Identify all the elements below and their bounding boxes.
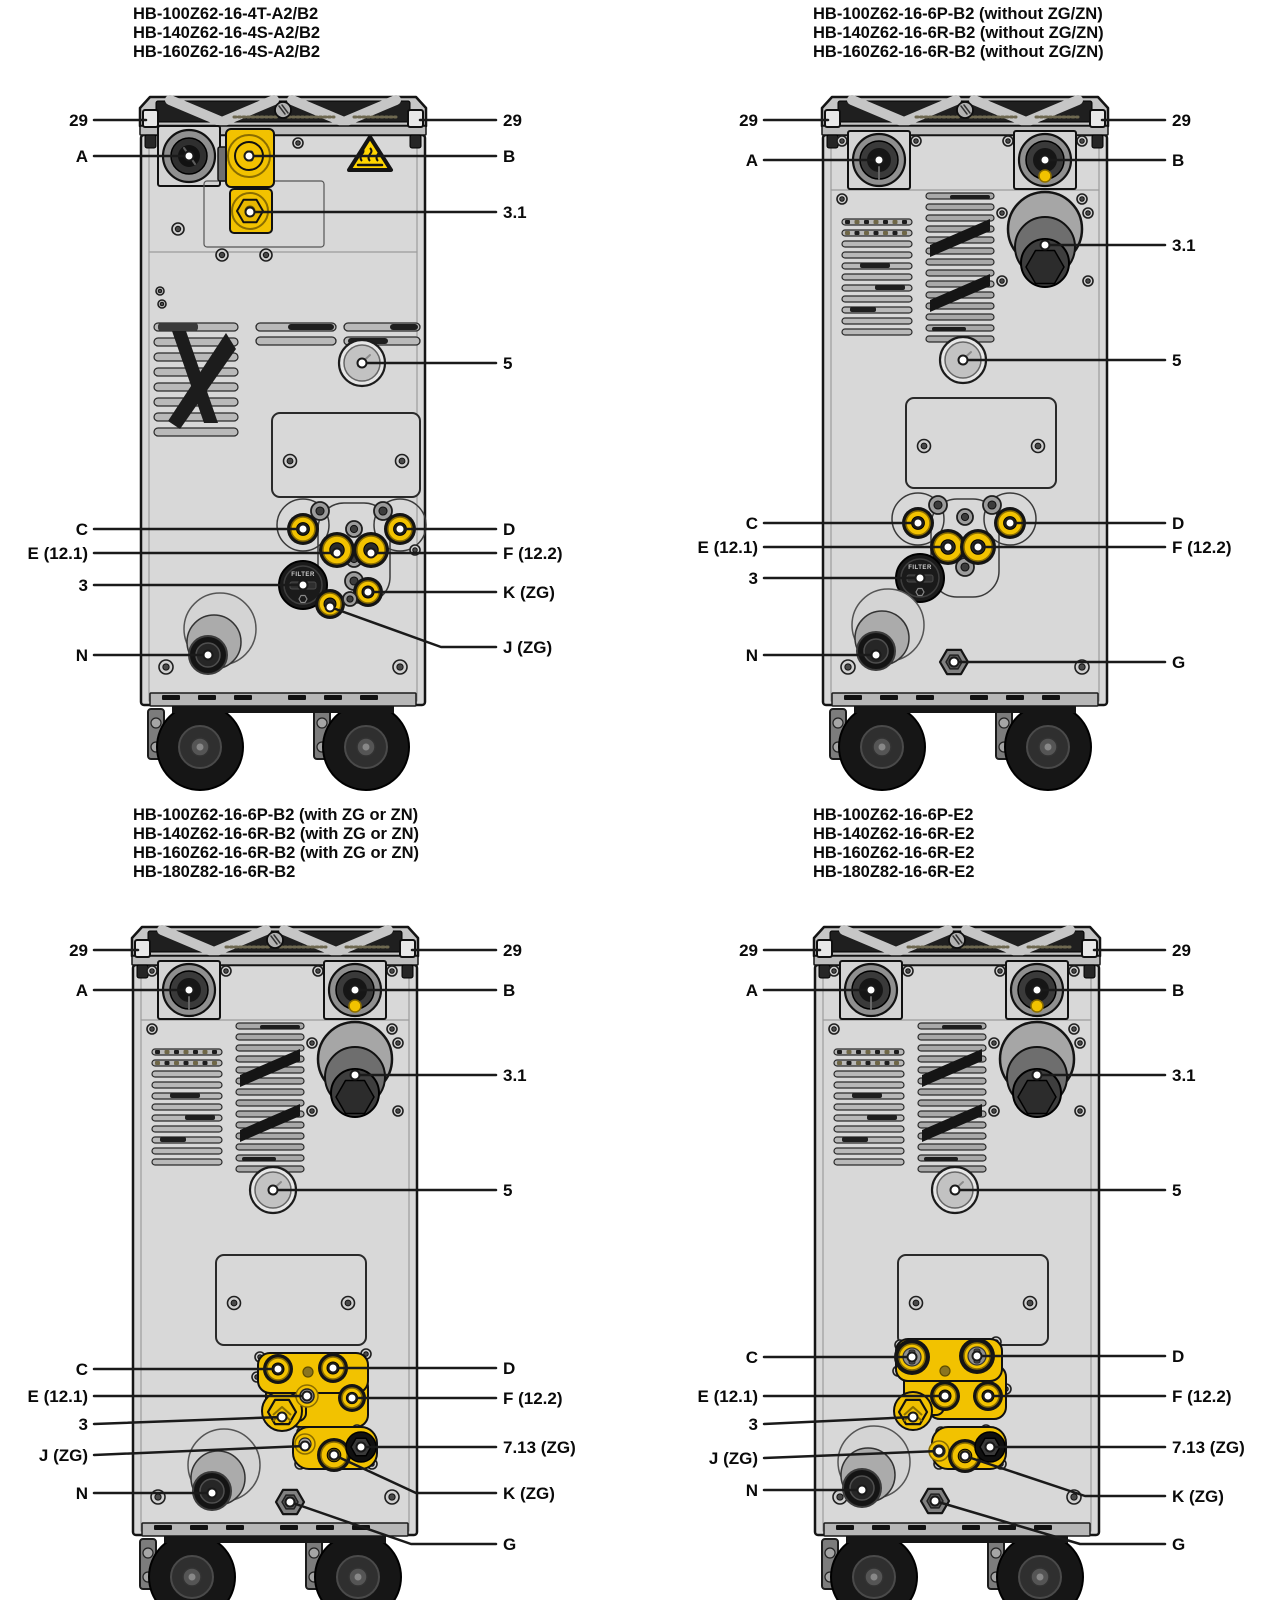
mount-tab-29: [825, 110, 840, 127]
callout-label-k-zg-: K (ZG): [503, 583, 555, 602]
callout-label-29: 29: [69, 941, 88, 960]
callout-label-3: 3: [79, 576, 88, 595]
title-line: HB-140Z62-16-4S-A2/B2: [133, 24, 320, 43]
callout-label-d: D: [503, 1359, 515, 1378]
leader-dot: [950, 658, 959, 667]
leader-dot: [961, 1452, 970, 1461]
leader-dot: [986, 1443, 995, 1452]
leader-dot: [931, 1497, 940, 1506]
filter-knob-label: FILTER: [908, 565, 932, 571]
mount-tab-29: [1090, 110, 1105, 127]
leader-dot: [351, 986, 360, 995]
leader-dot: [299, 525, 308, 534]
callout-label-e-12.1-: E (12.1): [28, 1387, 88, 1406]
callout-label-3: 3: [79, 1415, 88, 1434]
callout-label-b: B: [1172, 981, 1184, 1000]
callout-label-29: 29: [69, 111, 88, 130]
title-line: HB-100Z62-16-6P-B2 (with ZG or ZN): [133, 806, 419, 825]
callout-label-3.1: 3.1: [503, 203, 527, 222]
callout-label-g: G: [503, 1535, 516, 1554]
vent-grille-left: [842, 219, 912, 335]
leader-dot: [951, 1186, 960, 1195]
leader-dot: [358, 359, 367, 368]
callout-label-5: 5: [1172, 1181, 1181, 1200]
callout-label-3: 3: [749, 1415, 758, 1434]
vent-grille-left: [152, 1049, 222, 1165]
callout-label-c: C: [746, 514, 758, 533]
cap-screw-icon: [267, 932, 283, 948]
callout-label-c: C: [746, 1348, 758, 1367]
callout-label-f-12.2-: F (12.2): [1172, 538, 1232, 557]
mount-tab-29: [135, 940, 150, 957]
callout-label-a: A: [76, 147, 88, 166]
title-line: HB-160Z62-16-6R-B2 (with ZG or ZN): [133, 844, 419, 863]
leader-dot: [909, 1413, 918, 1422]
leader-dot: [908, 1353, 917, 1362]
leader-dot: [301, 1442, 310, 1451]
callout-label-29: 29: [1172, 111, 1191, 130]
callout-label-f-12.2-: F (12.2): [1172, 1387, 1232, 1406]
callout-label-7.13-zg-: 7.13 (ZG): [503, 1438, 576, 1457]
access-panel: [898, 1255, 1048, 1345]
callout-label-n: N: [76, 1484, 88, 1503]
callout-label-k-zg-: K (ZG): [1172, 1487, 1224, 1506]
panel-title: HB-100Z62-16-6P-E2HB-140Z62-16-6R-E2HB-1…: [813, 806, 974, 882]
callout-label-c: C: [76, 1360, 88, 1379]
mount-tab-29: [143, 110, 158, 127]
leader-dot: [858, 1486, 867, 1495]
leader-dot: [1006, 519, 1015, 528]
callout-label-n: N: [746, 646, 758, 665]
callout-label-29: 29: [503, 111, 522, 130]
leader-dot: [185, 986, 194, 995]
callout-label-a: A: [746, 151, 758, 170]
title-line: HB-160Z62-16-6R-E2: [813, 844, 974, 863]
leader-dot: [326, 603, 335, 612]
leader-dot: [278, 1413, 287, 1422]
leader-dot: [185, 152, 194, 161]
leader-dot: [204, 651, 213, 660]
callout-label-f-12.2-: F (12.2): [503, 1389, 563, 1408]
leader-dot: [1033, 1071, 1042, 1080]
cap-screw-icon: [275, 102, 291, 118]
mount-tab-29: [817, 940, 832, 957]
callout-label-3.1: 3.1: [1172, 1066, 1196, 1085]
access-panel: [216, 1255, 366, 1345]
callout-label-f-12.2-: F (12.2): [503, 544, 563, 563]
figure-rear-view-variants: FILTER2929AB3.15CDE (12.1)F (12.2)3K (ZG…: [0, 0, 1280, 1600]
title-line: HB-140Z62-16-6R-B2 (with ZG or ZN): [133, 825, 419, 844]
access-panel: [906, 398, 1056, 488]
leader-dot: [245, 152, 254, 161]
callout-label-29: 29: [503, 941, 522, 960]
callout-label-d: D: [1172, 514, 1184, 533]
leader-dot: [246, 208, 255, 217]
leader-dot: [274, 1365, 283, 1374]
callout-label-d: D: [503, 520, 515, 539]
leader-dot: [872, 651, 881, 660]
leader-dot: [1041, 241, 1050, 250]
panel-bottom-right: 2929AB3.15CDE (12.1)F (12.2)37.13 (ZG)J …: [698, 927, 1245, 1600]
title-line: HB-100Z62-16-6P-E2: [813, 806, 974, 825]
diagram-canvas: FILTER2929AB3.15CDE (12.1)F (12.2)3K (ZG…: [0, 0, 1280, 1600]
leader-dot: [1033, 986, 1042, 995]
callout-label-3.1: 3.1: [1172, 236, 1196, 255]
machine-rear-view: [814, 927, 1100, 1600]
callout-label-g: G: [1172, 653, 1185, 672]
mount-tab-29: [408, 110, 423, 127]
callout-label-5: 5: [1172, 351, 1181, 370]
title-line: HB-180Z82-16-6R-B2: [133, 863, 419, 882]
leader-dot: [973, 1352, 982, 1361]
panel-title: HB-100Z62-16-6P-B2 (with ZG or ZN)HB-140…: [133, 806, 419, 882]
leader-dot: [333, 549, 342, 558]
leader-dot: [396, 525, 405, 534]
callout-label-n: N: [746, 1481, 758, 1500]
panel-title: HB-100Z62-16-4T-A2/B2HB-140Z62-16-4S-A2/…: [133, 5, 320, 62]
callout-label-29: 29: [739, 941, 758, 960]
callout-label-29: 29: [1172, 941, 1191, 960]
callout-label-k-zg-: K (ZG): [503, 1484, 555, 1503]
leader-dot: [367, 549, 376, 558]
filter-knob-label: FILTER: [291, 572, 315, 578]
machine-rear-view: [132, 927, 418, 1600]
leader-dot: [875, 156, 884, 165]
callout-label-7.13-zg-: 7.13 (ZG): [1172, 1438, 1245, 1457]
callout-label-e-12.1-: E (12.1): [698, 538, 758, 557]
title-line: HB-100Z62-16-4T-A2/B2: [133, 5, 320, 24]
callout-label-e-12.1-: E (12.1): [698, 1387, 758, 1406]
leader-dot: [208, 1489, 217, 1498]
callout-label-3: 3: [749, 569, 758, 588]
callout-label-a: A: [746, 981, 758, 1000]
machine-rear-view: [822, 97, 1108, 790]
cap-screw-icon: [949, 932, 965, 948]
leader-dot: [269, 1186, 278, 1195]
title-line: HB-180Z82-16-6R-E2: [813, 863, 974, 882]
callout-label-j-zg-: J (ZG): [39, 1446, 88, 1465]
mount-tab-29: [400, 940, 415, 957]
panel-title: HB-100Z62-16-6P-B2 (without ZG/ZN)HB-140…: [813, 5, 1104, 62]
callout-label-d: D: [1172, 1347, 1184, 1366]
leader-dot: [935, 1447, 944, 1456]
title-line: HB-100Z62-16-6P-B2 (without ZG/ZN): [813, 5, 1104, 24]
callout-label-g: G: [1172, 1535, 1185, 1554]
machine-rear-view: [140, 97, 426, 790]
leader-dot: [914, 519, 923, 528]
title-line: HB-160Z62-16-6R-B2 (without ZG/ZN): [813, 43, 1104, 62]
leader-dot: [944, 543, 953, 552]
callout-label-b: B: [1172, 151, 1184, 170]
panel-bottom-left: 2929AB3.15CDE (12.1)F (12.2)37.13 (ZG)J …: [28, 927, 576, 1600]
leader-dot: [1041, 156, 1050, 165]
callout-label-b: B: [503, 147, 515, 166]
vent-grille-left: [834, 1049, 904, 1165]
leader-dot: [916, 574, 925, 583]
leader-dot: [984, 1392, 993, 1401]
callout-label-j-zg-: J (ZG): [503, 638, 552, 657]
callout-label-3.1: 3.1: [503, 1066, 527, 1085]
panel-top-right: FILTER2929AB3.15CDE (12.1)F (12.2)3NG: [698, 97, 1232, 790]
leader-dot: [299, 581, 308, 590]
leader-dot: [364, 588, 373, 597]
callout-label-e-12.1-: E (12.1): [28, 544, 88, 563]
callout-label-b: B: [503, 981, 515, 1000]
leader-dot: [303, 1392, 312, 1401]
leader-dot: [941, 1392, 950, 1401]
title-line: HB-140Z62-16-6R-B2 (without ZG/ZN): [813, 24, 1104, 43]
leader-dot: [286, 1498, 295, 1507]
leader-dot: [329, 1364, 338, 1373]
leader-dot: [348, 1394, 357, 1403]
access-panel: [272, 413, 420, 497]
callout-label-29: 29: [739, 111, 758, 130]
callout-label-j-zg-: J (ZG): [709, 1449, 758, 1468]
callout-label-5: 5: [503, 354, 512, 373]
leader-dot: [974, 543, 983, 552]
callout-label-5: 5: [503, 1181, 512, 1200]
cap-screw-icon: [957, 102, 973, 118]
leader-dot: [330, 1451, 339, 1460]
yellow-dot: [349, 1000, 361, 1012]
panel-top-left: FILTER2929AB3.15CDE (12.1)F (12.2)3K (ZG…: [28, 97, 563, 790]
leader-dot: [867, 986, 876, 995]
yellow-dot: [1039, 170, 1051, 182]
callout-label-a: A: [76, 981, 88, 1000]
leader-dot: [959, 356, 968, 365]
callout-label-n: N: [76, 646, 88, 665]
leader-dot: [351, 1071, 360, 1080]
mount-tab-29: [1082, 940, 1097, 957]
title-line: HB-140Z62-16-6R-E2: [813, 825, 974, 844]
callout-label-c: C: [76, 520, 88, 539]
yellow-dot: [1031, 1000, 1043, 1012]
title-line: HB-160Z62-16-4S-A2/B2: [133, 43, 320, 62]
leader-dot: [357, 1443, 366, 1452]
